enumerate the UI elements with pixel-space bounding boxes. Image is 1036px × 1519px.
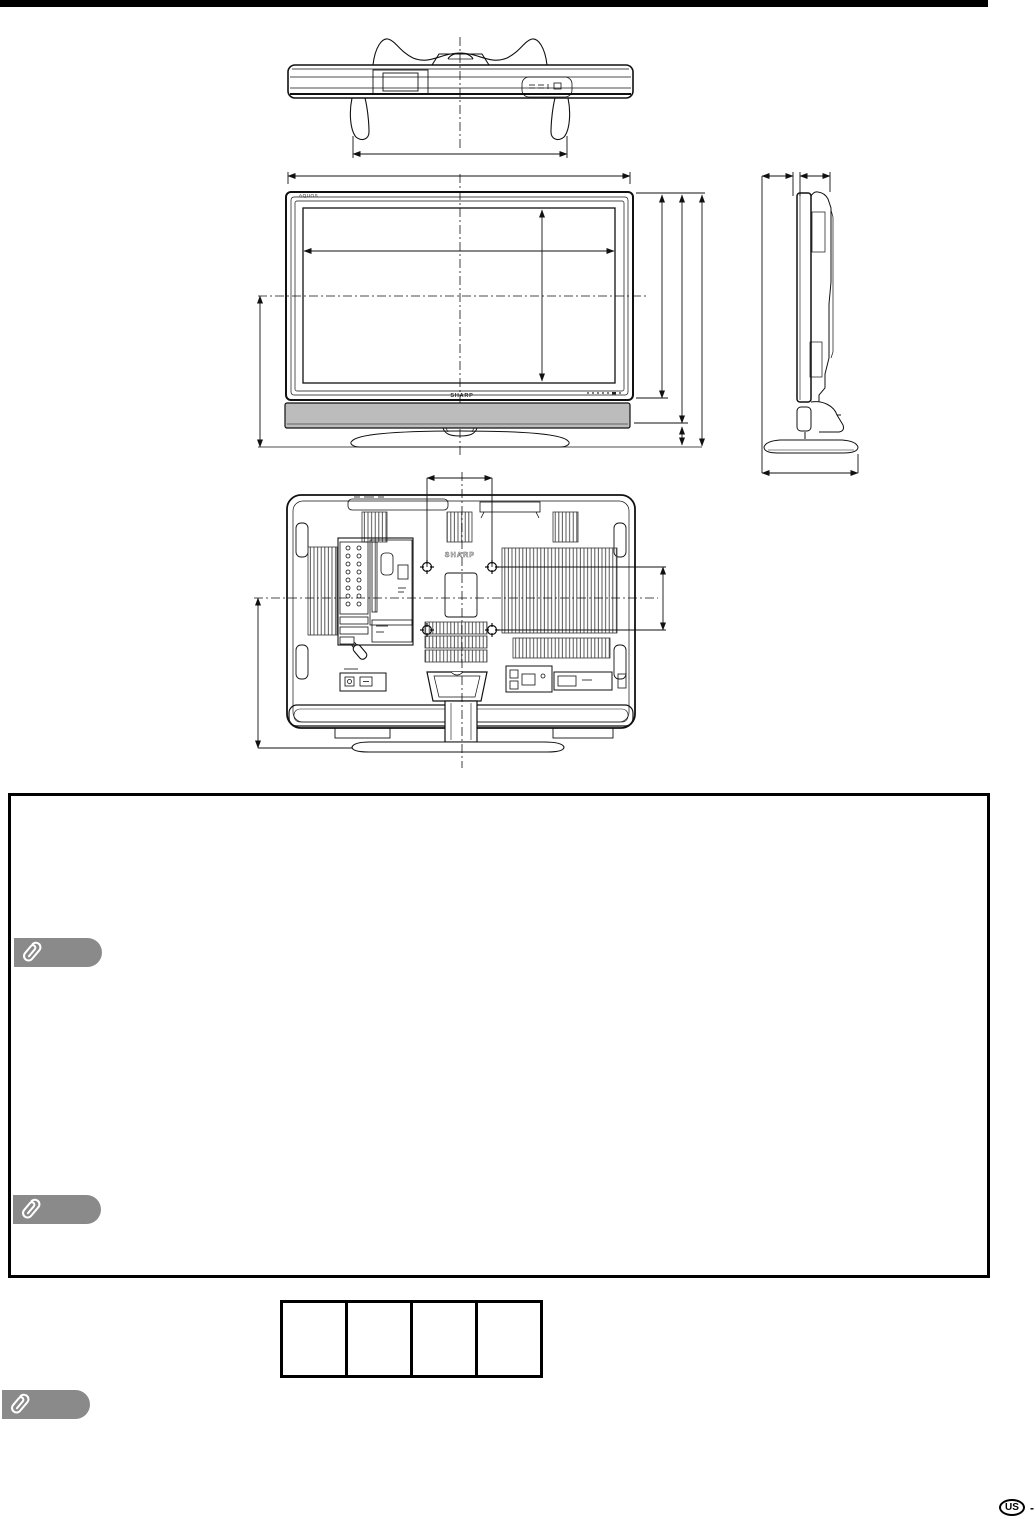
sharp-logo-rear: SHARP <box>445 552 476 559</box>
manual-page: AQUOS SHARP <box>0 0 1036 1519</box>
rear-side-terminal-box <box>506 666 626 692</box>
front-view-diagram: AQUOS SHARP <box>250 170 710 460</box>
section-header-bar <box>0 0 988 7</box>
rear-stand <box>352 672 564 752</box>
table-cell <box>283 1303 348 1375</box>
note-tag <box>2 1390 90 1419</box>
side-panel-profile <box>797 192 833 402</box>
table-cell <box>413 1303 478 1375</box>
side-stand <box>764 402 858 453</box>
aquos-logo: AQUOS <box>299 193 318 198</box>
side-base-dimension <box>762 454 858 473</box>
rear-view-diagram: SHARP <box>248 470 668 770</box>
paperclip-icon <box>19 940 44 965</box>
rear-ac-input-box <box>340 669 386 691</box>
page-region-badge: US - <box>999 1499 1034 1516</box>
front-screen <box>303 208 615 383</box>
top-view-body <box>288 65 633 98</box>
table-cell <box>478 1303 540 1375</box>
sharp-logo-front: SHARP <box>450 393 473 399</box>
front-right-dimensions <box>634 193 705 446</box>
top-view-diagram <box>280 32 640 162</box>
paperclip-icon <box>18 1197 43 1222</box>
table-cell <box>348 1303 413 1375</box>
side-depth-dimension <box>762 172 830 473</box>
front-width-dimension <box>288 172 630 184</box>
note-tag <box>13 1195 101 1224</box>
side-view-diagram <box>748 162 868 482</box>
spec-note-box <box>8 793 990 1278</box>
front-control-buttons <box>587 392 621 394</box>
paperclip-icon <box>7 1392 32 1417</box>
page-number-dash: - <box>1030 1501 1034 1515</box>
size-table <box>280 1300 543 1378</box>
note-tag <box>14 938 102 967</box>
us-region-mark: US <box>999 1499 1025 1516</box>
rear-terminal-panel <box>338 538 413 645</box>
